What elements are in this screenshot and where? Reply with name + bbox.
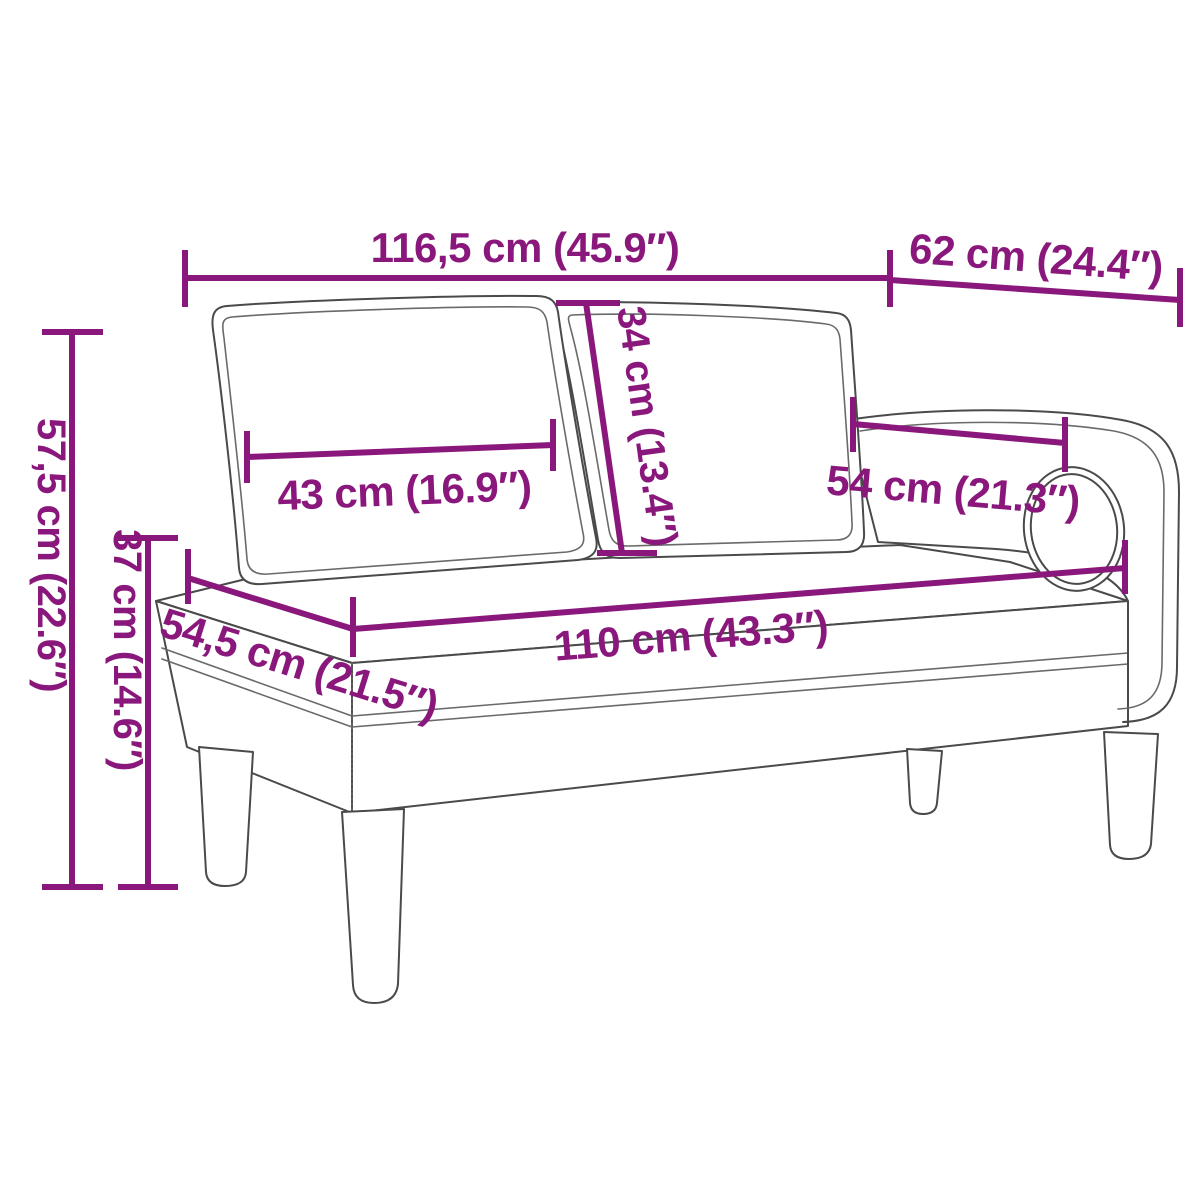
leg-front-right bbox=[1104, 732, 1158, 859]
leg-rear-right bbox=[907, 749, 942, 814]
dim-label-seat-height: 37 cm (14.6″) bbox=[105, 529, 149, 771]
dimension-diagram: 116,5 cm (45.9″) 62 cm (24.4″) 57,5 cm (… bbox=[0, 0, 1200, 1200]
dim-label-total-height: 57,5 cm (22.6″) bbox=[29, 418, 73, 692]
leg-rear-left bbox=[199, 747, 253, 886]
dim-label-arm-depth: 62 cm (24.4″) bbox=[908, 225, 1165, 291]
dim-label-total-width: 116,5 cm (45.9″) bbox=[371, 224, 680, 271]
leg-front-corner bbox=[342, 809, 404, 1003]
chaise-diagram-svg: 116,5 cm (45.9″) 62 cm (24.4″) 57,5 cm (… bbox=[0, 0, 1200, 1200]
back-cushion-left bbox=[212, 296, 596, 584]
